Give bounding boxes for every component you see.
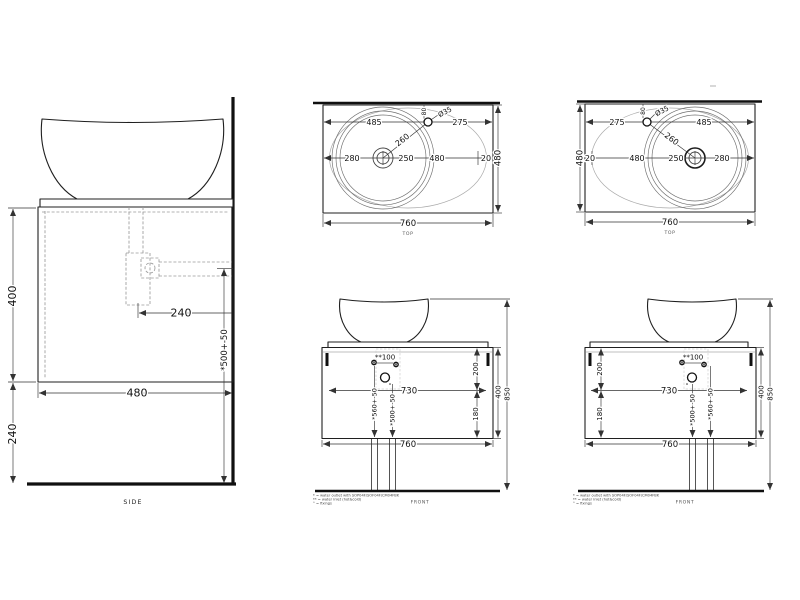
dim-top-b-edge-gap: 20 [585, 154, 595, 163]
drawing-sheet: 400 240 480 240 *500+-50 SIDE [0, 0, 800, 600]
faucet-hole [643, 118, 651, 126]
dim-front-a-inlet-height: *560+-50 [371, 388, 379, 420]
dim-front-a-total-height: 850 [503, 387, 511, 400]
dim-top-b-hole-setback: 80 [640, 107, 647, 115]
dim-front-b-bottom-offset: 180 [596, 407, 604, 420]
dim-top-a-left: 485 [366, 118, 381, 127]
dim-top-b-depth: 480 [576, 150, 586, 166]
door-handle-left [589, 353, 592, 366]
dim-top-a-center-a: 280 [344, 154, 359, 163]
front-view-right: **100 730 200 180 *500+-50 *560+-50 760 … [573, 299, 774, 506]
dim-top-b-right: 485 [696, 118, 711, 127]
plumbing-hidden [126, 207, 232, 305]
front-view-left: **100 730 200 180 *560+-50 *500+-50 760 … [313, 299, 511, 506]
dim-top-b-width: 760 [662, 218, 678, 228]
fixing-mark [686, 383, 688, 385]
dim-top-a-depth: 480 [494, 150, 504, 166]
dim-front-b-inlet-gap: **100 [683, 354, 703, 362]
dim-side-cabinet-height: 400 [6, 286, 19, 307]
dim-top-b-left: 275 [609, 118, 624, 127]
dim-front-a-inner-width: 730 [401, 387, 417, 397]
drain-outlet [381, 373, 390, 382]
floor-pipes [690, 439, 714, 490]
basin-front-profile [340, 299, 429, 342]
door-handle-right [750, 353, 753, 366]
note-fixings: ° = fixings [313, 502, 332, 506]
dim-front-a-width: 760 [400, 440, 416, 450]
fixing-mark [389, 383, 391, 385]
dim-front-a-inlet-gap: **100 [375, 354, 395, 362]
dim-side-trap-offset: 240 [171, 307, 192, 320]
dim-front-a-top-offset: 200 [472, 362, 480, 375]
side-view-caption: SIDE [123, 499, 142, 506]
front-b-notes: * = water outlet with SOP04F/SOF04F/CM04… [573, 494, 660, 506]
dim-front-b-top-offset: 200 [596, 362, 604, 375]
dim-top-b-center-b: 250 [668, 154, 683, 163]
top-view-left: 485 275 80 Ø35 280 250 480 20 260 480 76… [313, 103, 504, 237]
top-view-right: 275 485 80 Ø35 20 480 250 280 260 480 76… [576, 85, 763, 236]
dim-front-a-bottom-offset: 180 [472, 407, 480, 420]
top-b-caption: TOP [664, 230, 676, 236]
cabinet-side [38, 207, 233, 382]
front-b-caption: FRONT [676, 500, 695, 506]
stray-mark [710, 85, 716, 87]
dim-front-b-cabinet-height: 400 [757, 385, 765, 398]
drain-outlet [688, 373, 697, 382]
dim-front-a-outlet-height: *500+-50 [389, 394, 397, 426]
dim-top-a-center-b: 250 [398, 154, 413, 163]
dim-top-b-center-c: 280 [714, 154, 729, 163]
top-a-caption: TOP [402, 231, 414, 237]
dim-top-a-width: 760 [400, 219, 416, 229]
floor-pipes [372, 439, 396, 490]
dim-top-a-center-c: 480 [429, 154, 444, 163]
side-dimensions: 400 240 480 240 *500+-50 [6, 208, 233, 483]
technical-drawing: 400 240 480 240 *500+-50 SIDE [0, 0, 800, 600]
dim-front-b-outlet-height: *500+-50 [689, 394, 697, 426]
dim-front-b-inlet-height: *560+-50 [707, 388, 715, 420]
dim-front-b-inner-width: 730 [661, 387, 677, 397]
faucet-hole [424, 118, 432, 126]
side-view: 400 240 480 240 *500+-50 SIDE [6, 97, 236, 506]
dim-top-b-center-a: 480 [629, 154, 644, 163]
front-a-notes: * = water outlet with SOP04F/SOF04F/CM04… [313, 494, 400, 506]
dim-top-a-right: 275 [452, 118, 467, 127]
basin-side-profile [41, 119, 223, 199]
note-fixings: ° = fixings [573, 502, 592, 506]
door-handle-left [326, 353, 329, 366]
basin-front-profile [648, 299, 737, 342]
countertop-front [328, 342, 488, 348]
countertop-side [40, 199, 233, 207]
dim-top-a-hole-setback: 80 [421, 108, 428, 116]
dim-front-b-total-height: 850 [766, 387, 774, 400]
dim-top-a-edge-gap: 20 [481, 154, 491, 163]
dim-side-outlet-height: *500+-50 [220, 329, 230, 370]
dim-front-a-cabinet-height: 400 [494, 385, 502, 398]
door-handle-right [487, 353, 490, 366]
dim-side-depth: 480 [127, 387, 148, 400]
countertop-front [590, 342, 748, 348]
dim-side-floor-gap: 240 [6, 424, 19, 445]
front-a-caption: FRONT [411, 500, 430, 506]
dim-front-b-width: 760 [662, 440, 678, 450]
